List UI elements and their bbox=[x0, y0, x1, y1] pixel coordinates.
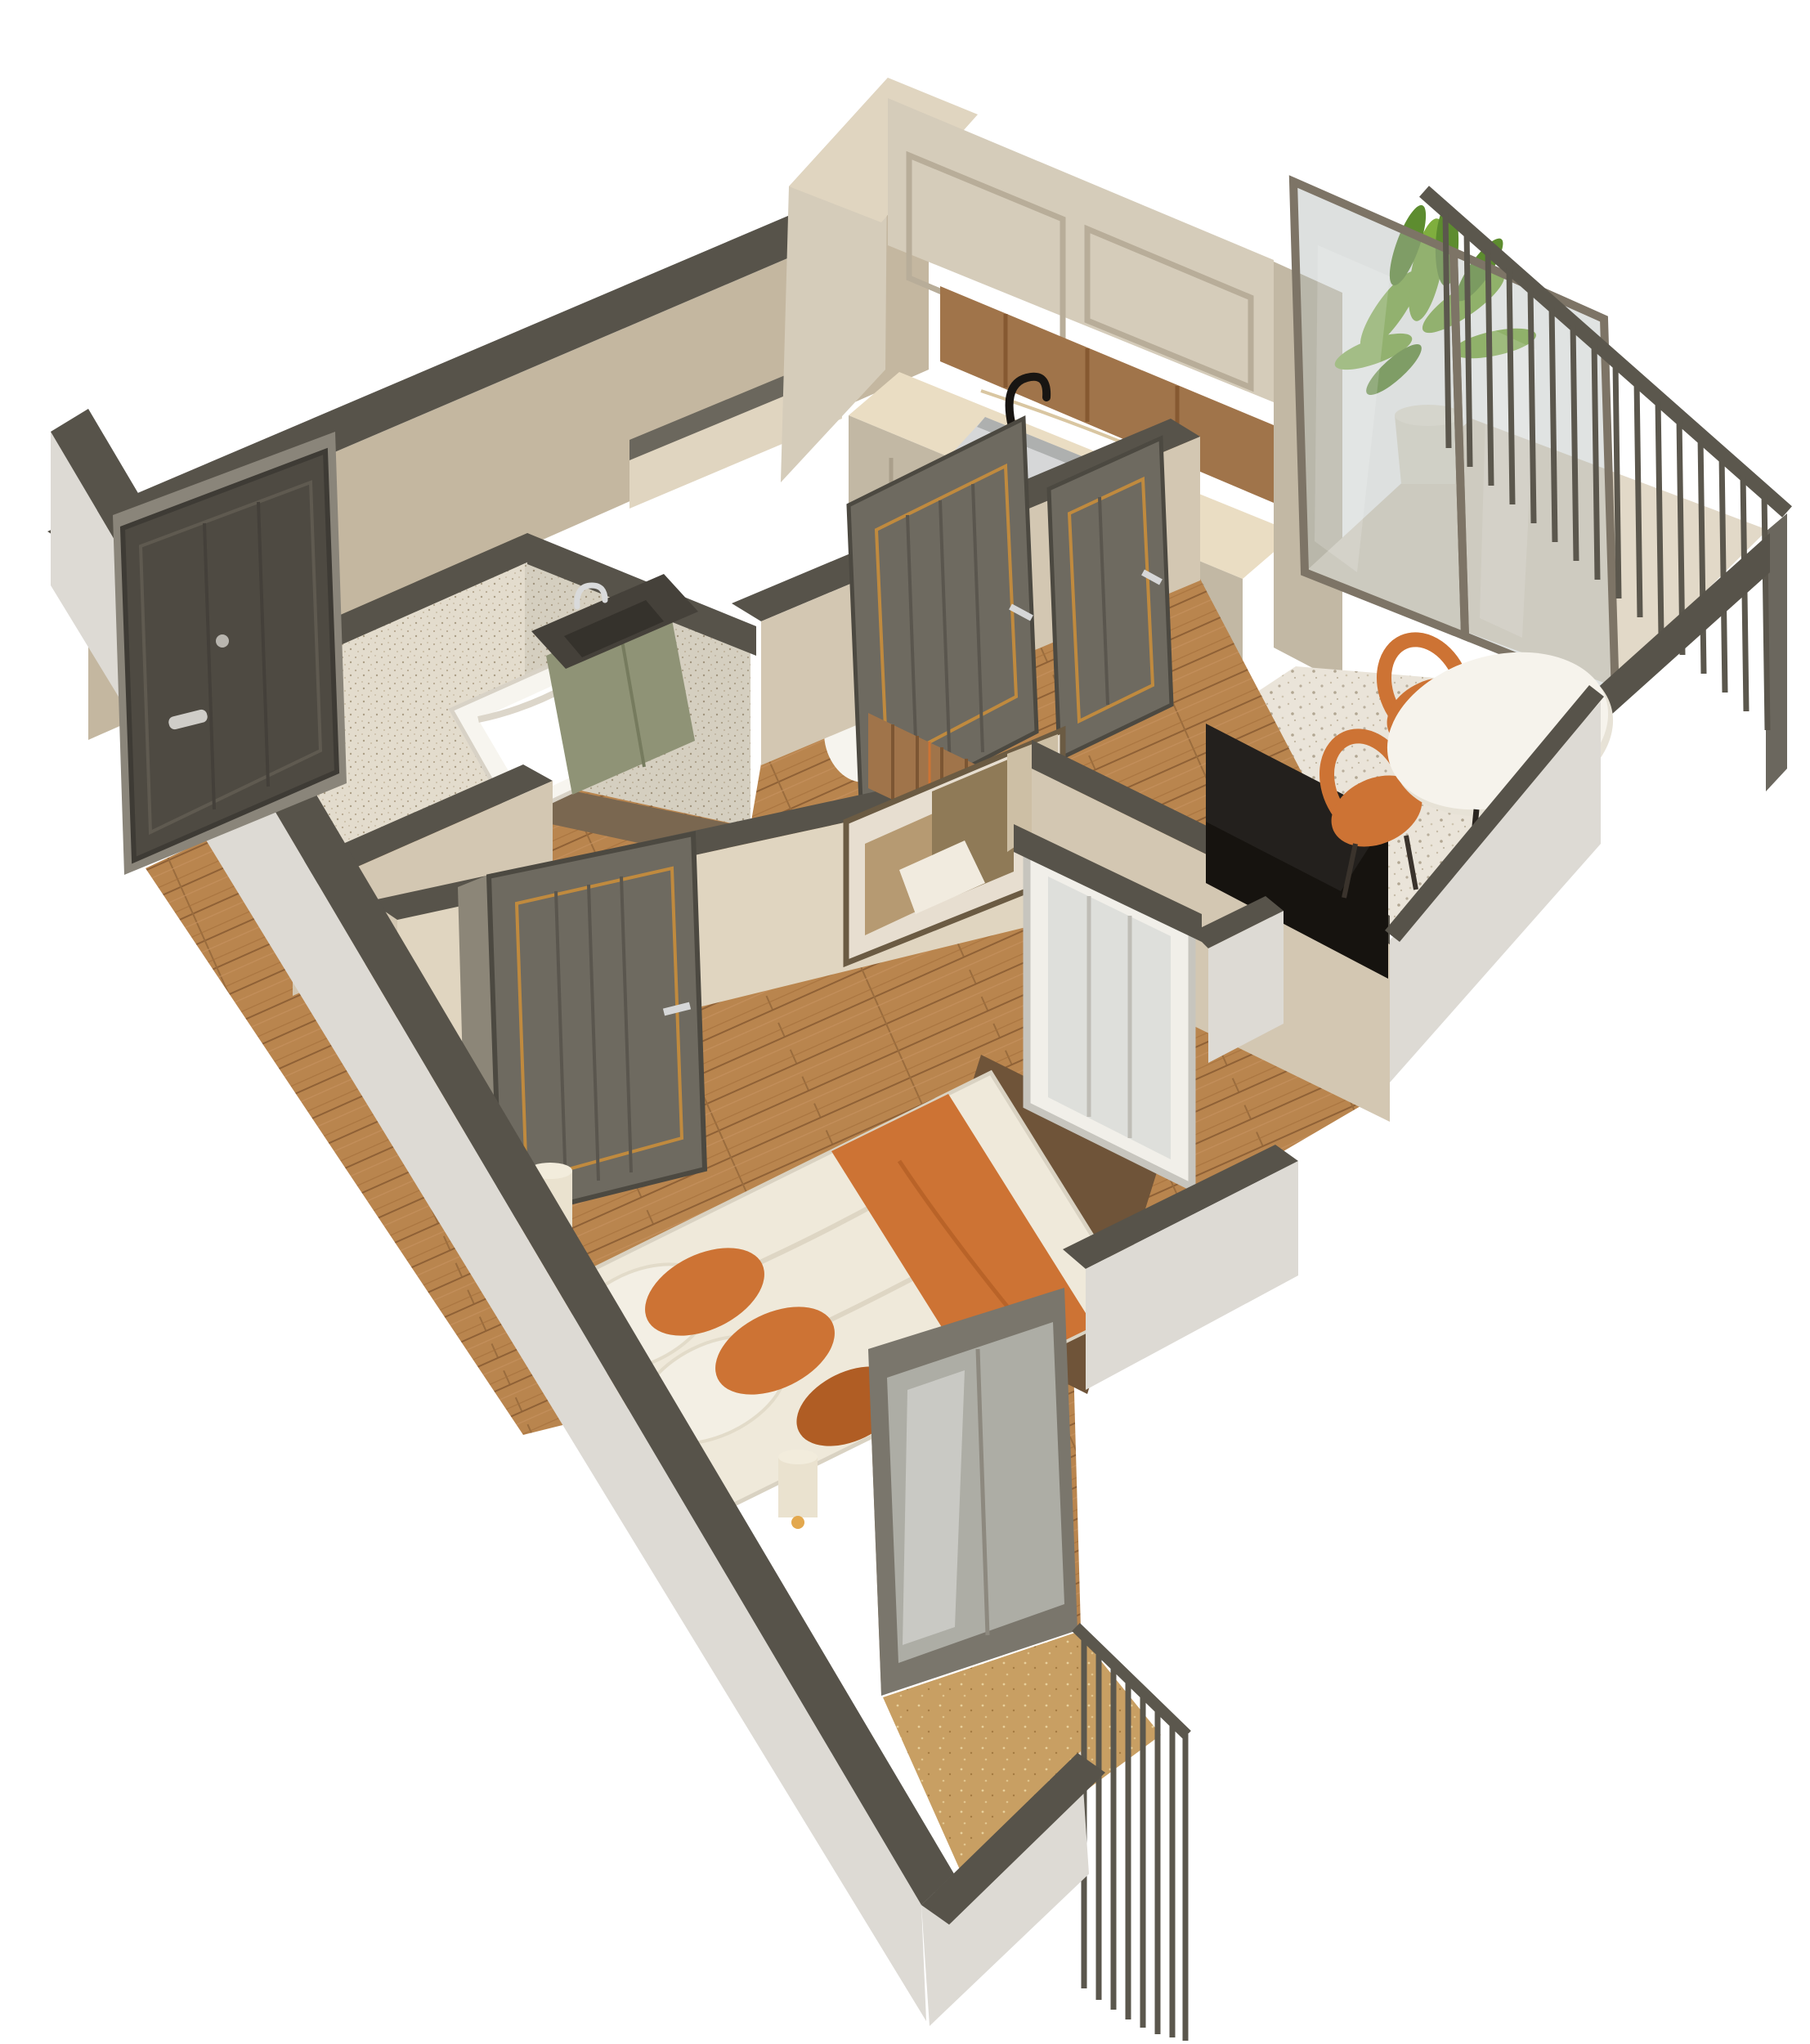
door-handle bbox=[1143, 572, 1161, 582]
bathtub-inner-shadow bbox=[478, 660, 609, 719]
hall-bedroom-wall bbox=[370, 713, 1069, 1081]
render-canvas bbox=[0, 0, 1810, 2044]
glass-panel-left bbox=[1293, 182, 1465, 636]
artwork-shape bbox=[899, 840, 985, 914]
plant-leaves bbox=[1331, 216, 1539, 378]
bathroom-floor bbox=[491, 781, 748, 857]
chair-leg bbox=[1406, 836, 1416, 890]
southwest-outer-face bbox=[51, 432, 926, 2021]
bed-orange-runner bbox=[831, 1094, 1094, 1383]
balcony-bottom bbox=[883, 1627, 1187, 2041]
lamp-shade bbox=[528, 1171, 572, 1241]
vanity-door-seam bbox=[621, 636, 644, 767]
marble-vein bbox=[981, 391, 1120, 442]
kitchen-base-cabinets bbox=[849, 415, 1243, 700]
drawer-line bbox=[1014, 543, 1202, 620]
toilet bbox=[813, 694, 897, 791]
vanity-stone-top bbox=[531, 574, 698, 669]
bathroom-door bbox=[849, 419, 1037, 822]
glass-door-mullion bbox=[978, 1349, 988, 1635]
dining-table bbox=[1369, 628, 1632, 876]
railing-slats bbox=[1445, 211, 1767, 730]
door-handle bbox=[664, 1006, 690, 1012]
railing-corner-return bbox=[1766, 513, 1787, 791]
lamp-glow bbox=[791, 1516, 804, 1529]
door-flute bbox=[907, 515, 917, 785]
balcony-floor bbox=[1305, 419, 1767, 685]
chair-leg bbox=[1400, 746, 1411, 800]
vanity-sink-rim bbox=[564, 600, 664, 657]
dining-set bbox=[1312, 627, 1632, 898]
chair-leg bbox=[1344, 844, 1355, 898]
dining-right-wall-face bbox=[1390, 702, 1601, 1083]
lamp-shade-top bbox=[778, 1450, 818, 1464]
railing-top-bar bbox=[1424, 191, 1787, 512]
pillows bbox=[549, 1230, 916, 1465]
bathtub-inner bbox=[478, 660, 656, 799]
tv-wall bbox=[1032, 724, 1390, 1122]
orange-chair-1 bbox=[1369, 627, 1489, 800]
bedroom-door-slab bbox=[489, 834, 705, 1220]
glass-reflection bbox=[1315, 245, 1390, 572]
tv bbox=[1206, 724, 1388, 985]
artwork-shape bbox=[1007, 734, 1058, 852]
northwest-wall bbox=[47, 173, 929, 740]
nightstand-lamp-1 bbox=[528, 1163, 572, 1253]
right-step-cap bbox=[1192, 896, 1284, 948]
upper-cabinets-face bbox=[888, 98, 1274, 402]
slat-lines bbox=[893, 724, 1040, 868]
right-step-face bbox=[1208, 911, 1284, 1063]
plant-leaves-dark bbox=[1360, 201, 1510, 401]
bathroom-wall-b-cap bbox=[527, 533, 756, 656]
tv-screen-glare bbox=[1206, 724, 1388, 891]
glass-door-frame bbox=[868, 1288, 1077, 1696]
balcony-bottom-floor bbox=[883, 1632, 1161, 1880]
table-leg bbox=[1470, 809, 1476, 876]
interior-doors bbox=[849, 419, 1172, 822]
kitchen-wood-back-panel bbox=[940, 286, 1274, 503]
towel-bar bbox=[889, 571, 952, 595]
entry-door bbox=[113, 432, 347, 875]
glass-door-pane bbox=[887, 1322, 1064, 1663]
northwest-wall-cap bbox=[47, 173, 929, 558]
bathroom-tile-wall-b bbox=[525, 554, 750, 827]
chair-back bbox=[1312, 724, 1422, 847]
door-flute bbox=[621, 876, 631, 1172]
bedroom-door-gold-trim bbox=[517, 868, 682, 1181]
hall-bedroom-wall-cap bbox=[370, 756, 1066, 920]
tile-wall-b-shade bbox=[525, 554, 750, 827]
table-leg bbox=[1553, 801, 1563, 870]
railing-top-bar bbox=[1076, 1627, 1187, 1735]
artwork-shape bbox=[865, 811, 939, 935]
bedroom-right-cap bbox=[1063, 1145, 1298, 1269]
lamp-shade bbox=[778, 1457, 818, 1517]
entry-door-seam bbox=[204, 523, 214, 809]
vanity-cabinet bbox=[546, 603, 695, 795]
bathtub-outer bbox=[451, 634, 680, 819]
living-window-head-cap bbox=[1014, 824, 1202, 942]
wood-slat-panel bbox=[868, 713, 1069, 883]
door-flute bbox=[556, 891, 566, 1187]
bed-duvet bbox=[572, 1073, 1136, 1513]
wood-slat-panel-face bbox=[868, 713, 1069, 883]
pillow-orange bbox=[701, 1289, 849, 1412]
balcony-plant bbox=[1331, 201, 1539, 484]
wc-door-gold-trim bbox=[1069, 479, 1153, 721]
southwest-wall-cap bbox=[51, 409, 959, 1905]
door-flute bbox=[589, 885, 598, 1181]
pillow-white bbox=[622, 1315, 804, 1466]
tall-cabinet-right-end bbox=[1274, 262, 1342, 684]
hall-side-wall-face bbox=[293, 781, 553, 996]
duvet-crease bbox=[654, 1153, 965, 1308]
kitchen-sink bbox=[951, 417, 1102, 502]
wc-door-slab bbox=[1049, 438, 1172, 759]
bathtub bbox=[451, 634, 680, 819]
bath-front-wall-cap bbox=[732, 419, 1200, 621]
chair-seat bbox=[1320, 762, 1434, 860]
right-side-walls bbox=[1014, 685, 1604, 1390]
artwork-canvas bbox=[846, 730, 1063, 963]
entry-door-seam bbox=[258, 502, 268, 787]
floor-plan-render bbox=[0, 0, 1810, 2044]
rug bbox=[903, 1055, 1165, 1394]
dining-right-wall-cap bbox=[1385, 685, 1604, 942]
upper-cabinet-panel-2 bbox=[1087, 229, 1251, 388]
planter-pot bbox=[1395, 415, 1462, 484]
bedroom-door-frame bbox=[458, 873, 502, 1244]
marble-vein bbox=[948, 401, 1169, 476]
table-edge bbox=[1373, 634, 1632, 841]
artwork bbox=[846, 730, 1063, 963]
outer-walls bbox=[51, 409, 1105, 2026]
bedroom-glass-door bbox=[868, 1288, 1077, 1696]
orange-chair-2 bbox=[1312, 724, 1433, 898]
pillow-white bbox=[549, 1243, 730, 1394]
door-flute bbox=[973, 484, 983, 752]
bathroom-block bbox=[260, 419, 1200, 996]
railing-slats bbox=[1084, 1637, 1185, 2041]
bathroom-tile-wall-a bbox=[270, 554, 525, 893]
balcony-bottom-railing bbox=[1076, 1627, 1187, 2041]
living-window bbox=[1014, 824, 1202, 1187]
kitchen-sink-inner-shadow bbox=[977, 417, 1102, 474]
entry-door-frame bbox=[113, 432, 347, 875]
vanity bbox=[531, 574, 698, 795]
hall-bedroom-wall-face bbox=[397, 774, 1066, 1081]
kitchen-faucet-icon bbox=[1010, 377, 1047, 427]
bath-front-wall-face bbox=[761, 437, 1200, 765]
balcony-fascia bbox=[1594, 533, 1770, 730]
pillow-orange bbox=[784, 1351, 917, 1463]
lamp-shade-top bbox=[528, 1163, 572, 1179]
south-outer-face bbox=[921, 1751, 1089, 2026]
nightstand-lamp-2 bbox=[778, 1450, 818, 1529]
entry-door-bevel bbox=[141, 482, 320, 832]
chair-leg bbox=[1462, 737, 1472, 791]
dining-kitchen-terrazzo-floor bbox=[849, 540, 1594, 935]
door-flute bbox=[1100, 497, 1108, 705]
entry-door-peephole bbox=[216, 634, 229, 648]
bathroom-window-niche-jamb bbox=[629, 352, 842, 460]
planter-pot-rim bbox=[1395, 405, 1462, 426]
living-window-glass bbox=[1048, 876, 1171, 1159]
bathroom-door-gold-trim bbox=[876, 466, 1016, 764]
chair-back bbox=[1369, 627, 1479, 751]
kitchen bbox=[781, 78, 1342, 700]
sliding-glass-doors bbox=[1293, 182, 1615, 697]
lamp-glow bbox=[543, 1239, 558, 1253]
runner-crease bbox=[899, 1161, 1022, 1325]
tv-wall-cap bbox=[1032, 740, 1390, 944]
hall-side-wall-cap bbox=[263, 764, 553, 895]
south-wall-cap bbox=[921, 1753, 1105, 1925]
door-handle bbox=[1010, 607, 1032, 618]
kitchen-counter-marble bbox=[849, 372, 1296, 579]
bathroom-door-slab bbox=[849, 419, 1037, 822]
chair-seat bbox=[1376, 664, 1490, 762]
glass-door-reflection bbox=[903, 1370, 965, 1645]
glass-reflection bbox=[1480, 327, 1537, 638]
entry-door-slab bbox=[123, 451, 337, 860]
tv-screen bbox=[1206, 724, 1388, 979]
bedroom-door bbox=[458, 834, 705, 1244]
wood-floor bbox=[146, 579, 1390, 1694]
wc-door bbox=[1049, 438, 1172, 759]
living-window-frame bbox=[1027, 844, 1192, 1187]
northwest-wall-interior-face bbox=[88, 198, 929, 740]
table-top bbox=[1369, 628, 1627, 835]
pillow-orange bbox=[631, 1230, 779, 1353]
artwork-shape bbox=[932, 757, 1014, 906]
bathroom-window-niche bbox=[629, 370, 842, 509]
tall-cabinet-top-face bbox=[789, 78, 978, 222]
glass-panel-right bbox=[1454, 252, 1615, 697]
balcony-railing bbox=[1424, 191, 1787, 791]
bathroom-wall-a-cap bbox=[260, 533, 560, 666]
bedroom-right-face bbox=[1086, 1161, 1298, 1390]
bed-group bbox=[528, 1055, 1165, 1529]
tv-wall-face bbox=[1032, 769, 1390, 1122]
tall-cabinet-left-face bbox=[781, 78, 888, 482]
vanity-faucet-icon bbox=[577, 585, 605, 607]
balcony-top bbox=[1293, 182, 1787, 791]
door-flute bbox=[940, 500, 950, 769]
base-cabinet-drawers bbox=[1014, 507, 1202, 654]
upper-cabinet-panel-1 bbox=[909, 155, 1063, 343]
duvet-crease bbox=[695, 1218, 1022, 1382]
entry-door-handle bbox=[168, 708, 208, 730]
